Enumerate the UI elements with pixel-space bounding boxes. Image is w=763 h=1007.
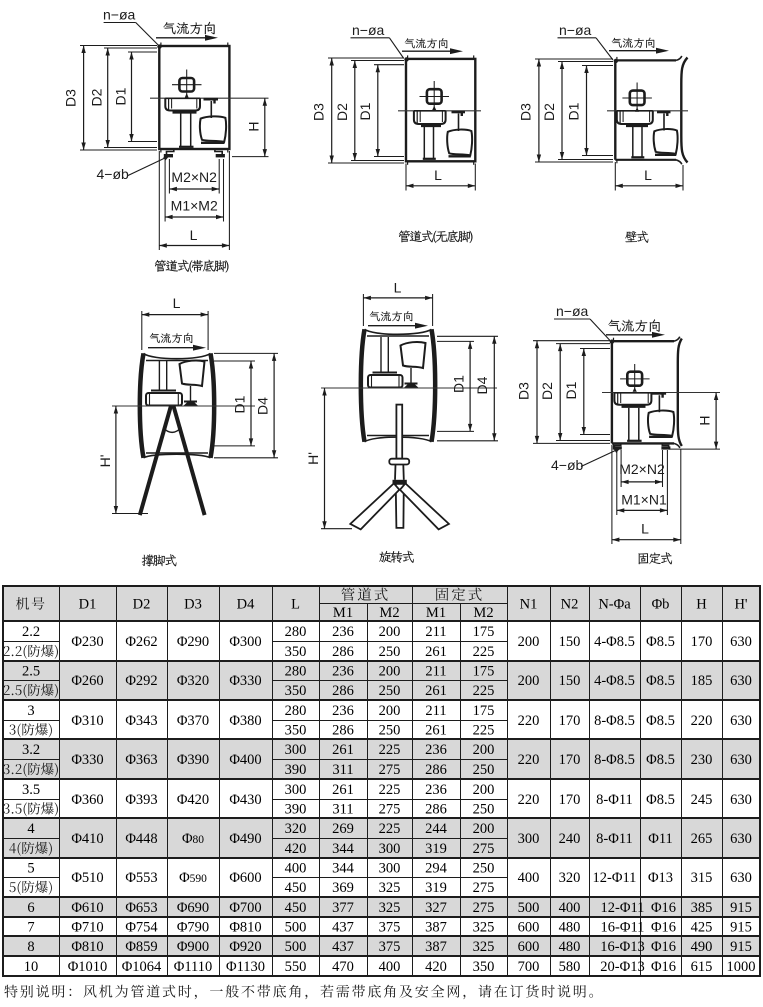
svg-text:Φ400: Φ400 <box>229 752 261 768</box>
svg-text:D4: D4 <box>255 397 271 415</box>
svg-text:286: 286 <box>332 683 354 699</box>
svg-text:400: 400 <box>518 870 540 886</box>
svg-text:261: 261 <box>425 683 447 699</box>
svg-text:275: 275 <box>379 801 401 817</box>
svg-text:211: 211 <box>425 663 446 679</box>
svg-text:D2: D2 <box>89 88 105 106</box>
svg-text:450: 450 <box>285 900 307 916</box>
svg-text:450: 450 <box>285 880 307 896</box>
svg-text:170: 170 <box>559 792 581 808</box>
svg-text:630: 630 <box>730 673 752 689</box>
svg-text:4: 4 <box>27 821 35 837</box>
svg-text:16-Φ13: 16-Φ13 <box>600 939 644 955</box>
svg-text:200: 200 <box>518 634 540 650</box>
svg-text:700: 700 <box>518 959 540 975</box>
svg-text:D3: D3 <box>516 382 532 400</box>
svg-text:Φ16: Φ16 <box>651 939 676 955</box>
svg-text:Φ430: Φ430 <box>229 792 261 808</box>
svg-text:L: L <box>644 167 652 183</box>
svg-text:300: 300 <box>379 860 401 876</box>
svg-text:350: 350 <box>285 644 307 660</box>
svg-text:Φ790: Φ790 <box>177 919 209 935</box>
svg-text:344: 344 <box>332 841 355 857</box>
svg-text:244: 244 <box>425 821 448 837</box>
svg-text:325: 325 <box>379 880 401 896</box>
svg-text:175: 175 <box>473 703 495 719</box>
svg-text:425: 425 <box>691 919 713 935</box>
svg-text:630: 630 <box>730 792 752 808</box>
svg-text:Φ710: Φ710 <box>71 919 103 935</box>
svg-text:170: 170 <box>559 752 581 768</box>
svg-text:630: 630 <box>730 831 752 847</box>
svg-text:300: 300 <box>379 841 401 857</box>
svg-text:280: 280 <box>285 624 307 640</box>
svg-text:N1: N1 <box>520 596 538 612</box>
svg-text:225: 225 <box>379 821 401 837</box>
svg-text:20-Φ13: 20-Φ13 <box>600 959 644 975</box>
svg-text:D1: D1 <box>113 87 129 105</box>
svg-text:600: 600 <box>518 939 540 955</box>
svg-text:D4: D4 <box>474 376 490 394</box>
svg-text:275: 275 <box>379 762 401 778</box>
svg-text:319: 319 <box>425 841 447 857</box>
svg-text:437: 437 <box>332 939 354 955</box>
svg-text:490: 490 <box>691 939 713 955</box>
svg-text:8-Φ8.5: 8-Φ8.5 <box>594 752 635 768</box>
svg-text:236: 236 <box>425 742 447 758</box>
svg-text:3: 3 <box>27 703 34 719</box>
svg-text:3.2: 3.2 <box>22 742 40 758</box>
svg-text:320: 320 <box>285 821 307 837</box>
svg-text:Φ590: Φ590 <box>179 870 207 886</box>
svg-text:630: 630 <box>730 870 752 886</box>
svg-text:220: 220 <box>518 792 540 808</box>
svg-text:236: 236 <box>425 782 447 798</box>
svg-text:200: 200 <box>518 673 540 689</box>
svg-text:437: 437 <box>332 919 354 935</box>
svg-text:250: 250 <box>379 644 401 660</box>
svg-text:630: 630 <box>730 713 752 729</box>
svg-text:286: 286 <box>425 762 447 778</box>
svg-text:N-Φa: N-Φa <box>598 596 631 612</box>
svg-text:Φ653: Φ653 <box>125 900 157 916</box>
svg-text:D1: D1 <box>566 102 582 120</box>
svg-text:375: 375 <box>379 919 401 935</box>
svg-text:390: 390 <box>285 801 307 817</box>
svg-text:D2: D2 <box>541 103 557 121</box>
svg-text:D3: D3 <box>518 103 534 121</box>
svg-text:630: 630 <box>730 634 752 650</box>
svg-text:Φb: Φb <box>652 596 670 612</box>
svg-text:L: L <box>190 227 198 243</box>
svg-text:350: 350 <box>285 722 307 738</box>
svg-text:n−øa: n−øa <box>559 22 592 38</box>
svg-text:Φ690: Φ690 <box>177 900 209 916</box>
svg-text:Φ510: Φ510 <box>71 870 103 886</box>
svg-text:236: 236 <box>332 663 354 679</box>
svg-text:5: 5 <box>27 860 34 876</box>
svg-text:630: 630 <box>730 752 752 768</box>
svg-text:315: 315 <box>691 870 713 886</box>
svg-text:420: 420 <box>425 959 447 975</box>
svg-text:D3: D3 <box>184 596 202 612</box>
svg-text:Φ1010: Φ1010 <box>68 959 108 975</box>
svg-text:Φ260: Φ260 <box>71 673 103 689</box>
svg-text:M2×N2: M2×N2 <box>619 461 665 477</box>
svg-text:286: 286 <box>425 801 447 817</box>
svg-text:H': H' <box>97 455 113 468</box>
svg-text:Φ360: Φ360 <box>71 792 103 808</box>
svg-text:12-Φ11: 12-Φ11 <box>601 900 645 916</box>
svg-text:200: 200 <box>379 703 401 719</box>
svg-text:325: 325 <box>379 900 401 916</box>
svg-text:Φ900: Φ900 <box>177 939 209 955</box>
svg-text:Φ1064: Φ1064 <box>122 959 162 975</box>
svg-text:275: 275 <box>473 900 495 916</box>
svg-text:Φ16: Φ16 <box>651 919 676 935</box>
svg-text:L: L <box>434 167 442 183</box>
svg-text:M1: M1 <box>333 605 353 621</box>
svg-text:325: 325 <box>473 939 495 955</box>
svg-text:Φ310: Φ310 <box>71 713 103 729</box>
svg-text:250: 250 <box>379 683 401 699</box>
svg-text:Φ920: Φ920 <box>229 939 261 955</box>
svg-text:369: 369 <box>332 880 354 896</box>
svg-text:470: 470 <box>332 959 354 975</box>
svg-text:615: 615 <box>691 959 713 975</box>
svg-text:Φ610: Φ610 <box>71 900 103 916</box>
svg-text:Φ363: Φ363 <box>125 752 157 768</box>
svg-text:250: 250 <box>473 762 495 778</box>
svg-text:385: 385 <box>691 900 713 916</box>
svg-text:Φ370: Φ370 <box>177 713 209 729</box>
svg-text:12-Φ11: 12-Φ11 <box>593 870 637 886</box>
svg-text:n−øa: n−øa <box>556 303 589 319</box>
svg-text:Φ700: Φ700 <box>229 900 261 916</box>
svg-text:Φ320: Φ320 <box>177 673 209 689</box>
svg-text:Φ420: Φ420 <box>177 792 209 808</box>
svg-text:236: 236 <box>332 624 354 640</box>
svg-text:Φ16: Φ16 <box>651 900 676 916</box>
svg-text:7: 7 <box>27 919 34 935</box>
svg-text:500: 500 <box>285 919 307 935</box>
svg-text:294: 294 <box>425 860 448 876</box>
svg-text:185: 185 <box>691 673 713 689</box>
svg-text:Φ1130: Φ1130 <box>226 959 265 975</box>
svg-text:250: 250 <box>473 860 495 876</box>
svg-text:L: L <box>394 280 402 296</box>
svg-text:H': H' <box>305 452 321 465</box>
svg-text:200: 200 <box>473 742 495 758</box>
svg-text:M2: M2 <box>379 605 399 621</box>
svg-text:200: 200 <box>379 624 401 640</box>
svg-text:211: 211 <box>425 624 446 640</box>
svg-text:D2: D2 <box>133 596 151 612</box>
svg-text:311: 311 <box>332 762 353 778</box>
svg-text:Φ754: Φ754 <box>125 919 158 935</box>
svg-text:1000: 1000 <box>727 959 756 975</box>
svg-text:915: 915 <box>730 919 752 935</box>
svg-text:3.5: 3.5 <box>22 782 40 798</box>
svg-text:M1×N1: M1×N1 <box>621 492 667 508</box>
svg-text:8-Φ11: 8-Φ11 <box>596 792 633 808</box>
svg-text:311: 311 <box>332 801 353 817</box>
svg-text:261: 261 <box>332 742 354 758</box>
svg-text:M1: M1 <box>426 605 446 621</box>
svg-text:8-Φ11: 8-Φ11 <box>596 831 633 847</box>
svg-text:Φ1110: Φ1110 <box>174 959 213 975</box>
svg-text:Φ16: Φ16 <box>651 959 676 975</box>
svg-text:175: 175 <box>473 663 495 679</box>
svg-text:M2: M2 <box>473 605 493 621</box>
svg-text:225: 225 <box>473 722 495 738</box>
svg-text:250: 250 <box>379 722 401 738</box>
svg-text:Φ448: Φ448 <box>125 831 157 847</box>
svg-text:220: 220 <box>691 713 713 729</box>
svg-text:230: 230 <box>691 752 713 768</box>
svg-text:Φ8.5: Φ8.5 <box>646 673 675 689</box>
svg-text:Φ11: Φ11 <box>648 831 673 847</box>
svg-text:500: 500 <box>518 900 540 916</box>
svg-text:n−øa: n−øa <box>352 22 385 38</box>
svg-text:200: 200 <box>473 782 495 798</box>
svg-text:344: 344 <box>332 860 355 876</box>
svg-text:Φ330: Φ330 <box>229 673 261 689</box>
svg-text:2.2: 2.2 <box>22 624 40 640</box>
svg-text:2.5: 2.5 <box>22 663 40 679</box>
svg-text:Φ393: Φ393 <box>125 792 157 808</box>
svg-text:480: 480 <box>559 939 581 955</box>
svg-text:915: 915 <box>730 939 752 955</box>
svg-text:Φ8.5: Φ8.5 <box>646 752 675 768</box>
svg-text:275: 275 <box>473 880 495 896</box>
svg-text:236: 236 <box>332 703 354 719</box>
svg-text:300: 300 <box>518 831 540 847</box>
svg-text:Φ390: Φ390 <box>177 752 209 768</box>
svg-text:Φ553: Φ553 <box>125 870 157 886</box>
svg-text:600: 600 <box>518 919 540 935</box>
svg-text:327: 327 <box>425 900 447 916</box>
svg-text:320: 320 <box>559 870 581 886</box>
svg-text:4-Φ8.5: 4-Φ8.5 <box>594 634 635 650</box>
svg-text:225: 225 <box>379 782 401 798</box>
svg-text:Φ8.5: Φ8.5 <box>646 792 675 808</box>
svg-text:Φ80: Φ80 <box>182 831 204 847</box>
svg-text:D2: D2 <box>539 382 555 400</box>
svg-text:4−øb: 4−øb <box>551 457 584 473</box>
svg-text:L: L <box>173 295 181 311</box>
svg-text:D2: D2 <box>334 103 350 121</box>
svg-text:350: 350 <box>285 683 307 699</box>
svg-text:Φ490: Φ490 <box>229 831 261 847</box>
svg-text:170: 170 <box>691 634 713 650</box>
svg-text:420: 420 <box>285 841 307 857</box>
svg-text:250: 250 <box>473 801 495 817</box>
svg-text:D4: D4 <box>237 596 255 612</box>
svg-text:N2: N2 <box>561 596 579 612</box>
svg-text:387: 387 <box>425 919 447 935</box>
svg-text:L: L <box>291 596 300 612</box>
svg-text:200: 200 <box>379 663 401 679</box>
svg-text:D1: D1 <box>451 375 467 393</box>
svg-text:Φ292: Φ292 <box>125 673 157 689</box>
svg-text:261: 261 <box>332 782 354 798</box>
svg-text:275: 275 <box>473 841 495 857</box>
svg-text:300: 300 <box>285 782 307 798</box>
svg-text:Φ410: Φ410 <box>71 831 103 847</box>
svg-text:Φ600: Φ600 <box>229 870 261 886</box>
svg-text:280: 280 <box>285 663 307 679</box>
svg-text:245: 245 <box>691 792 713 808</box>
svg-text:D1: D1 <box>232 395 248 413</box>
svg-text:400: 400 <box>379 959 401 975</box>
svg-text:580: 580 <box>559 959 581 975</box>
svg-text:240: 240 <box>559 831 581 847</box>
svg-text:Φ262: Φ262 <box>125 634 157 650</box>
svg-text:10: 10 <box>24 959 39 975</box>
svg-text:220: 220 <box>518 713 540 729</box>
svg-text:4-Φ8.5: 4-Φ8.5 <box>594 673 635 689</box>
svg-text:M1×M2: M1×M2 <box>171 198 218 214</box>
svg-text:Φ290: Φ290 <box>177 634 209 650</box>
svg-text:D3: D3 <box>311 103 327 121</box>
svg-text:6: 6 <box>27 900 34 916</box>
svg-text:377: 377 <box>332 900 354 916</box>
svg-text:8: 8 <box>27 939 34 955</box>
svg-text:D1: D1 <box>357 102 373 120</box>
svg-text:D1: D1 <box>79 596 97 612</box>
svg-text:Φ380: Φ380 <box>229 713 261 729</box>
svg-text:D3: D3 <box>63 89 79 107</box>
svg-text:225: 225 <box>473 683 495 699</box>
svg-text:269: 269 <box>332 821 354 837</box>
svg-text:375: 375 <box>379 939 401 955</box>
svg-text:Φ859: Φ859 <box>125 939 157 955</box>
svg-text:400: 400 <box>559 900 581 916</box>
svg-text:390: 390 <box>285 762 307 778</box>
svg-text:M2×N2: M2×N2 <box>171 169 217 185</box>
svg-text:325: 325 <box>473 919 495 935</box>
svg-text:Φ343: Φ343 <box>125 713 157 729</box>
svg-text:Φ810: Φ810 <box>71 939 103 955</box>
svg-text:16-Φ11: 16-Φ11 <box>601 919 645 935</box>
svg-text:n−øa: n−øa <box>103 7 136 23</box>
svg-text:D1: D1 <box>563 381 579 399</box>
svg-text:280: 280 <box>285 703 307 719</box>
svg-text:Φ8.5: Φ8.5 <box>646 634 675 650</box>
svg-text:265: 265 <box>691 831 713 847</box>
svg-text:150: 150 <box>559 634 581 650</box>
svg-text:550: 550 <box>285 959 307 975</box>
svg-text:915: 915 <box>730 900 752 916</box>
svg-text:211: 211 <box>425 703 446 719</box>
svg-text:500: 500 <box>285 939 307 955</box>
svg-text:319: 319 <box>425 880 447 896</box>
svg-text:261: 261 <box>425 722 447 738</box>
svg-text:261: 261 <box>425 644 447 660</box>
svg-text:L: L <box>641 521 649 537</box>
svg-text:H': H' <box>734 596 747 612</box>
svg-text:225: 225 <box>473 644 495 660</box>
svg-text:Φ330: Φ330 <box>71 752 103 768</box>
svg-text:Φ300: Φ300 <box>229 634 261 650</box>
svg-text:350: 350 <box>473 959 495 975</box>
svg-text:H: H <box>246 121 262 131</box>
svg-text:200: 200 <box>473 821 495 837</box>
svg-text:175: 175 <box>473 624 495 640</box>
svg-text:H: H <box>697 415 713 425</box>
svg-text:300: 300 <box>285 742 307 758</box>
svg-text:480: 480 <box>559 919 581 935</box>
svg-text:H: H <box>696 596 707 612</box>
svg-text:286: 286 <box>332 722 354 738</box>
svg-text:286: 286 <box>332 644 354 660</box>
svg-text:220: 220 <box>518 752 540 768</box>
svg-text:Φ8.5: Φ8.5 <box>646 713 675 729</box>
svg-text:400: 400 <box>285 860 307 876</box>
svg-text:150: 150 <box>559 673 581 689</box>
svg-text:Φ810: Φ810 <box>229 919 261 935</box>
svg-text:225: 225 <box>379 742 401 758</box>
svg-text:Φ13: Φ13 <box>648 870 673 886</box>
svg-text:170: 170 <box>559 713 581 729</box>
svg-text:387: 387 <box>425 939 447 955</box>
svg-text:Φ230: Φ230 <box>71 634 103 650</box>
svg-text:8-Φ8.5: 8-Φ8.5 <box>594 713 635 729</box>
svg-text:4−øb: 4−øb <box>97 166 130 182</box>
